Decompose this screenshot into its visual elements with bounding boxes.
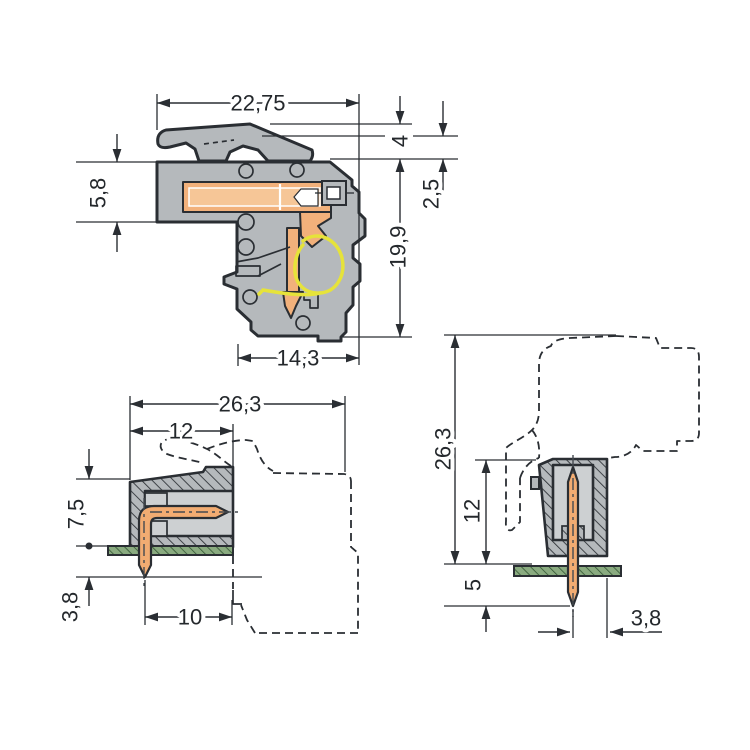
technical-drawing-page: 22,75 4 2,5 19,9 5,8 14,3 [0, 0, 750, 750]
dim-label-total-depth: 26,3 [219, 392, 262, 417]
dim-label-pin-below-board: 3,8 [58, 592, 83, 623]
dim-label-housing-depth: 12 [169, 419, 193, 444]
dim-total-depth: 26,3 [130, 392, 345, 417]
dim-total-width: 22,75 [157, 91, 359, 116]
dim-label-pin-to-edge: 3,8 [631, 606, 662, 631]
dim-label-latch-offset: 2,5 [419, 179, 444, 210]
view-side-section: 22,75 4 2,5 19,9 5,8 14,3 [76, 91, 458, 371]
cavity-step [145, 493, 167, 506]
dim-label-total-height: 26,3 [431, 428, 456, 471]
technical-drawing-canvas: 22,75 4 2,5 19,9 5,8 14,3 [0, 0, 750, 750]
dim-body-height: 19,9 [386, 159, 411, 337]
dim-pin-to-edge: 3,8 [538, 606, 662, 633]
dim-front-height: 5,8 [86, 134, 118, 252]
dim-height-above-board: 7,5 [64, 449, 93, 550]
datum-dot [86, 543, 93, 550]
view-angled-header: 26,3 12 7,5 3,8 10 [58, 392, 359, 634]
locking-latch-lever [158, 124, 313, 161]
dim-label-housing-height: 12 [460, 499, 485, 523]
dim-pin-to-face: 10 [145, 605, 232, 630]
dim-label-total-width: 22,75 [230, 91, 285, 116]
dim-housing-depth: 12 [130, 419, 233, 444]
view-vertical-header: 26,3 12 5 3,8 [431, 335, 700, 638]
dim-housing-height: 12 [460, 460, 487, 564]
dim-body-depth: 14,3 [238, 346, 359, 371]
dim-label-height-above-board: 7,5 [64, 499, 89, 530]
dim-label-pin-to-face: 10 [178, 605, 202, 630]
dim-latch-height: 4 [388, 96, 413, 147]
dim-label-body-height: 19,9 [386, 226, 411, 269]
dim-label-pin-below-board: 5 [461, 579, 486, 591]
dim-pin-below-board: 3,8 [58, 577, 90, 622]
dim-label-body-depth: 14,3 [277, 346, 320, 371]
housing-notch [531, 477, 539, 489]
dim-latch-offset: 2,5 [419, 101, 444, 209]
dim-label-front-height: 5,8 [86, 178, 111, 209]
pcb-board [108, 546, 233, 555]
dim-label-latch-height: 4 [388, 135, 413, 147]
dim-total-height: 26,3 [431, 335, 456, 564]
